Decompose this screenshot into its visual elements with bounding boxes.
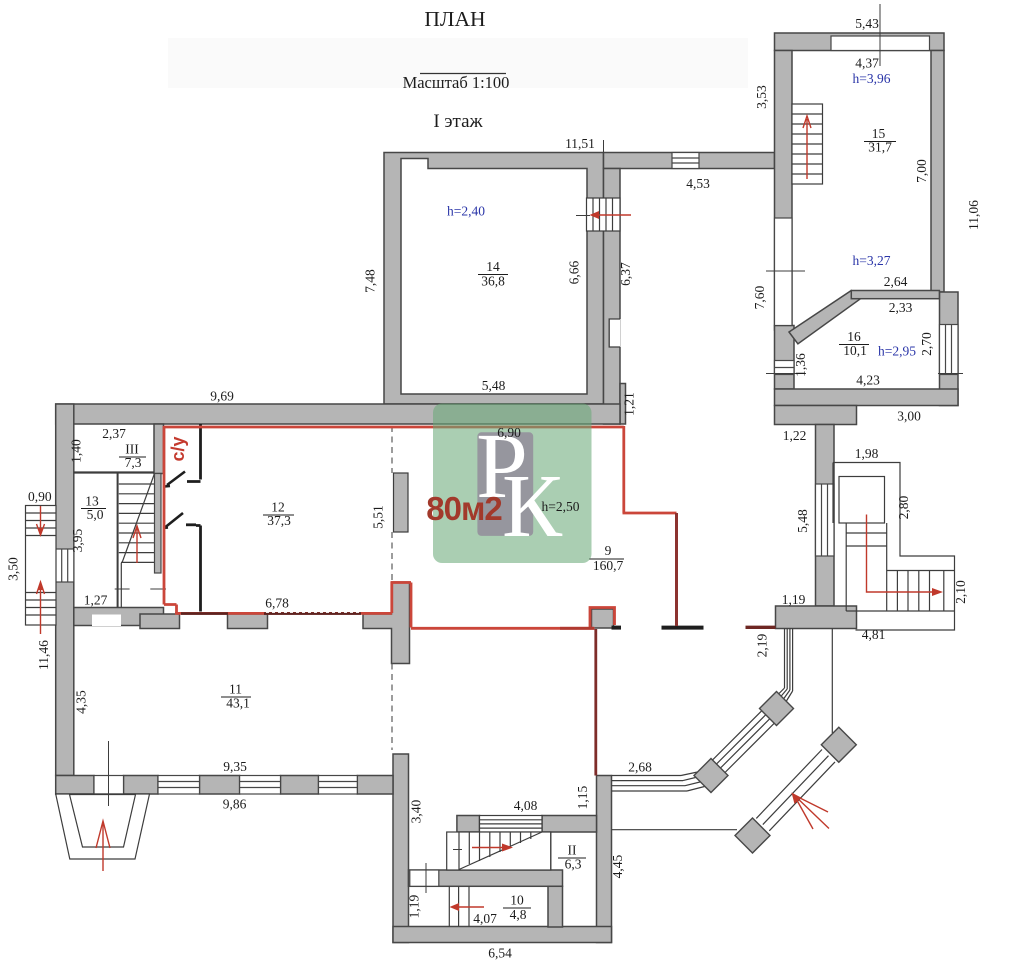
svg-text:11,46: 11,46	[36, 640, 51, 670]
svg-text:3,53: 3,53	[754, 85, 769, 109]
svg-text:7,00: 7,00	[914, 159, 929, 183]
svg-text:4,45: 4,45	[610, 854, 625, 878]
svg-text:4,81: 4,81	[862, 627, 886, 642]
svg-text:9,86: 9,86	[223, 797, 247, 812]
svg-text:9,69: 9,69	[210, 389, 234, 404]
svg-text:1,22: 1,22	[783, 428, 807, 443]
svg-text:160,7: 160,7	[593, 558, 624, 573]
svg-text:4,35: 4,35	[74, 690, 89, 714]
svg-text:h=3,27: h=3,27	[853, 253, 891, 268]
svg-text:1,19: 1,19	[407, 894, 422, 918]
svg-text:1,27: 1,27	[84, 593, 108, 608]
svg-text:1,40: 1,40	[69, 439, 84, 463]
svg-text:2,19: 2,19	[755, 633, 770, 657]
svg-text:6,66: 6,66	[567, 260, 582, 284]
svg-text:3,95: 3,95	[70, 528, 85, 552]
svg-text:5,51: 5,51	[371, 505, 386, 529]
svg-text:ПЛАН: ПЛАН	[424, 7, 485, 31]
svg-text:2,68: 2,68	[628, 760, 652, 775]
svg-text:7,48: 7,48	[363, 269, 378, 293]
svg-text:2,33: 2,33	[889, 300, 913, 315]
svg-text:6,37: 6,37	[618, 262, 633, 286]
svg-text:6,78: 6,78	[265, 596, 289, 611]
svg-text:5,0: 5,0	[87, 507, 104, 522]
svg-text:2,10: 2,10	[953, 580, 968, 604]
svg-text:5,43: 5,43	[855, 16, 879, 31]
svg-text:4,08: 4,08	[514, 798, 538, 813]
svg-text:5,48: 5,48	[795, 509, 810, 533]
svg-text:2,70: 2,70	[919, 332, 934, 356]
svg-text:7,3: 7,3	[125, 455, 142, 470]
svg-text:3,40: 3,40	[409, 799, 424, 823]
svg-text:10: 10	[510, 893, 524, 908]
svg-text:1,21: 1,21	[622, 392, 637, 416]
svg-text:43,1: 43,1	[226, 696, 250, 711]
svg-text:6,3: 6,3	[565, 857, 582, 872]
svg-text:11: 11	[229, 682, 242, 697]
svg-text:h=2,95: h=2,95	[878, 344, 916, 359]
svg-text:h=2,40: h=2,40	[447, 204, 485, 219]
svg-text:4,23: 4,23	[856, 373, 880, 388]
svg-text:14: 14	[486, 259, 500, 274]
svg-text:2,80: 2,80	[896, 495, 911, 519]
svg-text:Масштаб 1:100: Масштаб 1:100	[403, 73, 510, 92]
svg-text:4,8: 4,8	[510, 907, 527, 922]
svg-text:1,36: 1,36	[793, 353, 808, 377]
svg-text:5,48: 5,48	[482, 378, 506, 393]
svg-text:80м2: 80м2	[426, 490, 502, 527]
svg-text:10,1: 10,1	[843, 343, 867, 358]
svg-text:4,07: 4,07	[473, 911, 497, 926]
svg-text:31,7: 31,7	[868, 140, 892, 155]
svg-text:3,50: 3,50	[6, 557, 21, 581]
svg-text:0,90: 0,90	[28, 489, 52, 504]
svg-text:11,06: 11,06	[966, 200, 981, 230]
svg-text:4,37: 4,37	[855, 56, 879, 71]
svg-text:4,53: 4,53	[686, 176, 710, 191]
svg-text:h=2,50: h=2,50	[542, 499, 580, 514]
svg-text:16: 16	[847, 329, 861, 344]
svg-text:6,54: 6,54	[488, 946, 512, 961]
svg-text:37,3: 37,3	[267, 513, 291, 528]
svg-text:9: 9	[605, 543, 612, 558]
svg-text:І этаж: І этаж	[433, 111, 483, 132]
svg-text:1,15: 1,15	[575, 785, 590, 809]
svg-text:II: II	[568, 843, 577, 858]
svg-text:h=3,96: h=3,96	[853, 71, 891, 86]
svg-text:36,8: 36,8	[481, 274, 505, 289]
svg-text:7,60: 7,60	[752, 285, 767, 309]
svg-text:11,51: 11,51	[565, 136, 595, 151]
svg-text:1,19: 1,19	[782, 592, 806, 607]
svg-text:3,00: 3,00	[897, 409, 921, 424]
svg-text:2,64: 2,64	[884, 274, 908, 289]
svg-text:2,37: 2,37	[102, 426, 126, 441]
svg-text:6,90: 6,90	[497, 425, 521, 440]
svg-text:1,98: 1,98	[855, 446, 879, 461]
svg-text:9,35: 9,35	[223, 759, 247, 774]
svg-text:с/у: с/у	[168, 436, 188, 461]
